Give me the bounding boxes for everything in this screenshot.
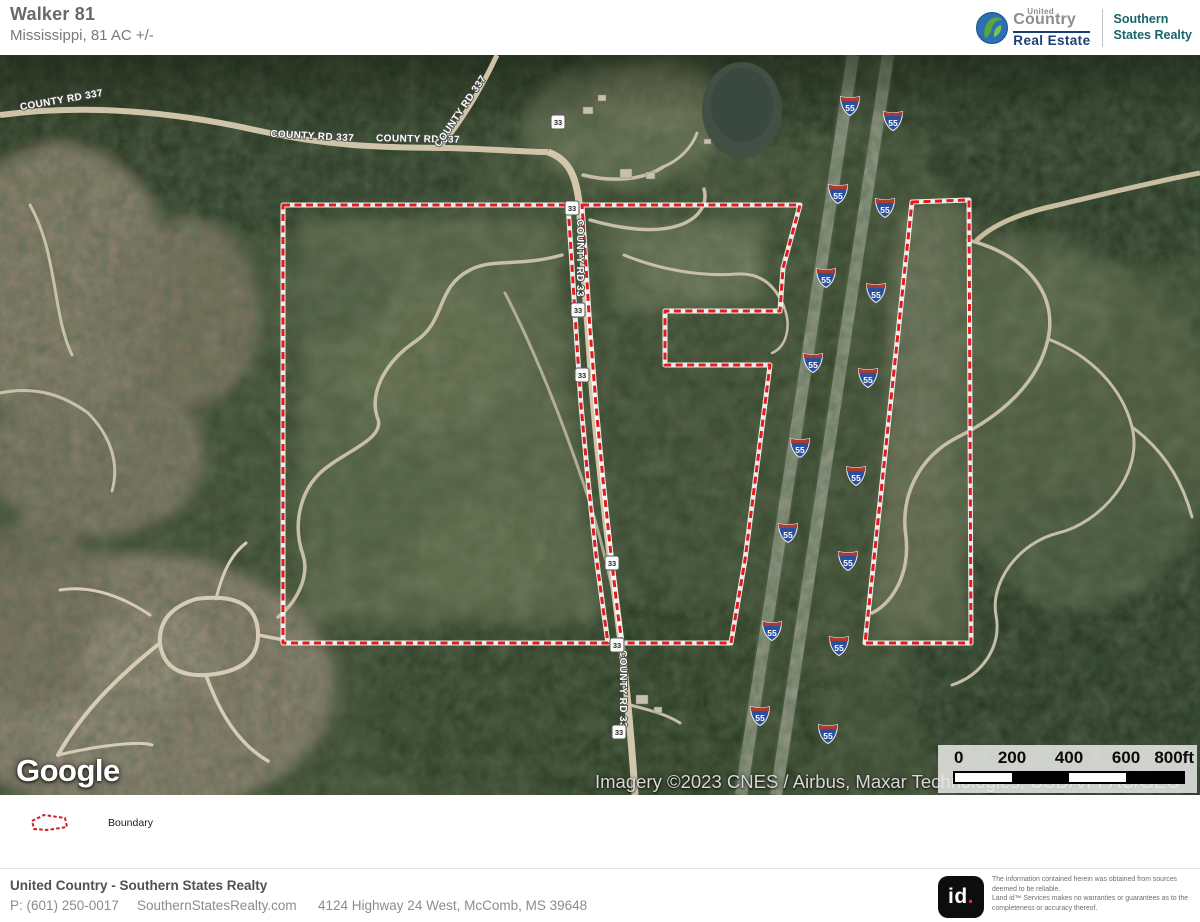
- partner-name: Southern States Realty: [1113, 12, 1192, 43]
- brand-block: United Country Real Estate Southern Stat…: [975, 4, 1192, 52]
- svg-text:55: 55: [767, 628, 777, 638]
- footer: United Country - Southern States Realty …: [0, 868, 1200, 922]
- svg-text:55: 55: [833, 191, 843, 201]
- scale-label: 0: [954, 748, 963, 768]
- header: Walker 81 Mississippi, 81 AC +/- United …: [0, 0, 1200, 55]
- svg-text:55: 55: [851, 473, 861, 483]
- brand-divider: [1102, 9, 1103, 47]
- svg-text:55: 55: [755, 713, 765, 723]
- svg-text:55: 55: [821, 275, 831, 285]
- svg-text:55: 55: [808, 360, 818, 370]
- footer-company: United Country - Southern States Realty: [10, 878, 267, 893]
- page-title: Walker 81: [10, 4, 95, 25]
- footer-address: 4124 Highway 24 West, McComb, MS 39648: [318, 898, 587, 913]
- uc-real-estate-text: Real Estate: [1013, 31, 1090, 48]
- road-label: COUNTY RD 33: [574, 219, 585, 297]
- county-road-33-shield: 33: [610, 638, 624, 652]
- svg-text:55: 55: [863, 375, 873, 385]
- svg-text:55: 55: [795, 445, 805, 455]
- svg-text:55: 55: [843, 558, 853, 568]
- svg-text:55: 55: [871, 290, 881, 300]
- terrain-art: COUNTY RD 337COUNTY RD 337COUNTY RD 337C…: [0, 55, 1200, 795]
- svg-text:55: 55: [888, 118, 898, 128]
- county-road-33-shield: 33: [575, 368, 589, 382]
- united-country-logo: United Country Real Estate: [975, 8, 1090, 48]
- scale-label: 800ft: [1154, 748, 1194, 768]
- svg-text:55: 55: [834, 643, 844, 653]
- landid-disclaimer: The information contained herein was obt…: [992, 875, 1198, 914]
- scale-bar: 0 200 400 600 800ft: [938, 745, 1197, 793]
- globe-icon: [975, 11, 1009, 45]
- svg-text:55: 55: [880, 205, 890, 215]
- svg-text:33: 33: [608, 559, 616, 568]
- legend-boundary-label: Boundary: [108, 817, 153, 829]
- scale-label: 400: [1055, 748, 1083, 768]
- svg-text:33: 33: [574, 306, 582, 315]
- svg-text:55: 55: [783, 530, 793, 540]
- svg-text:33: 33: [568, 204, 576, 213]
- county-road-33-shield: 33: [612, 725, 626, 739]
- svg-text:33: 33: [613, 641, 621, 650]
- road-label: COUNTY RD 33: [617, 650, 628, 728]
- legend: Boundary: [28, 810, 153, 836]
- county-road-33-shield: 33: [551, 115, 565, 129]
- boundary-legend-icon: [28, 812, 72, 834]
- footer-website-link[interactable]: SouthernStatesRealty.com: [137, 898, 297, 913]
- svg-text:55: 55: [823, 731, 833, 741]
- page-subtitle: Mississippi, 81 AC +/-: [10, 27, 154, 44]
- scale-bar-segments: [953, 771, 1185, 784]
- footer-phone: P: (601) 250-0017: [10, 898, 119, 913]
- svg-text:55: 55: [845, 103, 855, 113]
- landid-logo: id.: [938, 876, 984, 918]
- scale-label: 200: [998, 748, 1026, 768]
- satellite-map: COUNTY RD 337COUNTY RD 337COUNTY RD 337C…: [0, 55, 1200, 795]
- county-road-33-shield: 33: [565, 201, 579, 215]
- svg-text:33: 33: [615, 728, 623, 737]
- scale-label: 600: [1112, 748, 1140, 768]
- svg-text:33: 33: [578, 371, 586, 380]
- county-road-33-shield: 33: [605, 556, 619, 570]
- google-logo: Google: [16, 753, 120, 789]
- uc-country-text: Country: [1013, 12, 1076, 28]
- svg-text:33: 33: [554, 118, 562, 127]
- county-road-33-shield: 33: [571, 303, 585, 317]
